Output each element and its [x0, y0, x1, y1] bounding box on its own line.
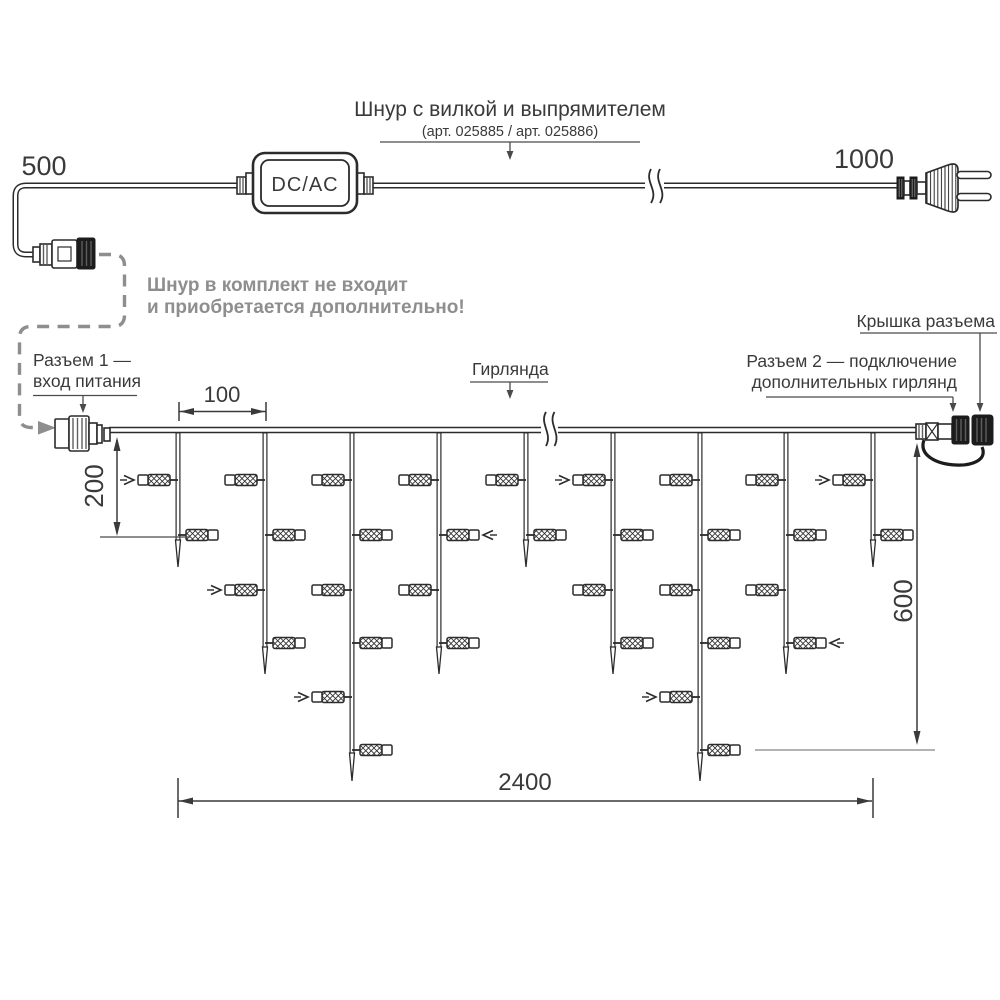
led-bulb [312, 475, 352, 486]
gray-arrow-icon [38, 421, 56, 435]
flash-arrow-icon [555, 476, 569, 485]
led-bulb [265, 638, 305, 649]
flash-arrow-icon [815, 476, 829, 485]
led-bulb [265, 530, 305, 541]
cord-subtitle: (арт. 025885 / арт. 025886) [422, 124, 598, 140]
dim-long-drop-value: 600 [888, 579, 918, 622]
converter-label: DC/AC [271, 174, 338, 196]
led-bulb [352, 638, 392, 649]
led-bulb [700, 745, 740, 756]
led-bulb [873, 530, 913, 541]
led-bulb [613, 638, 653, 649]
dim-cord-left: 500 [21, 151, 66, 181]
cord-socket-connector [33, 238, 95, 269]
flash-arrow-icon [294, 693, 308, 702]
dim-short-drop-value: 200 [79, 464, 109, 507]
led-bulb [746, 585, 786, 596]
callout-connector2: Разъем 2 — подключение дополнительных ги… [746, 351, 957, 412]
led-bulb [120, 475, 178, 486]
flash-arrow-icon [483, 531, 497, 540]
connector1-label-line2: вход питания [33, 371, 141, 391]
callout-connector1: Разъем 1 — вход питания [33, 350, 141, 413]
led-bulb [352, 530, 392, 541]
icicle-drop [815, 433, 913, 567]
led-bulb [225, 475, 265, 486]
icicle-drop [120, 433, 218, 567]
dcac-converter-box: DC/AC [237, 153, 373, 213]
led-bulb [815, 475, 873, 486]
led-bulb [439, 530, 497, 541]
converter-right-coupler [364, 177, 373, 194]
dashed-connection-route [20, 255, 125, 435]
icicle-drop [294, 433, 392, 781]
flash-arrow-icon [830, 639, 844, 648]
connector2-label-line2: дополнительных гирлянд [752, 372, 957, 392]
led-bulb [786, 530, 826, 541]
led-bulb [399, 475, 439, 486]
led-bulb [312, 585, 352, 596]
led-bulb [642, 692, 700, 703]
icicle-drop [399, 433, 497, 674]
led-bulb [399, 585, 439, 596]
not-included-note-line2: и приобретается дополнительно! [147, 297, 465, 318]
plug-prong-bottom [957, 194, 991, 201]
led-bulb [352, 745, 392, 756]
led-bulb [573, 585, 613, 596]
icicle-drop [746, 433, 844, 674]
dim-drop-spacing-value: 100 [204, 382, 241, 407]
garland-diagram: DC/AC 500 1000 Шнур с вилко [0, 0, 1000, 1000]
led-bulb [700, 530, 740, 541]
power-cord-section: DC/AC 500 1000 Шнур с вилко [16, 98, 992, 269]
led-bulb [786, 638, 844, 649]
dimension-drop-spacing: 100 [179, 382, 266, 421]
callout-garland: Гирлянда [470, 359, 549, 399]
dimension-garland-length: 2400 [178, 769, 873, 818]
connector1-label-line1: Разъем 1 — [33, 350, 131, 370]
power-plug-icon [897, 164, 991, 212]
led-bulb [660, 585, 700, 596]
icicle-drop [486, 433, 566, 567]
led-bulb [486, 475, 526, 486]
dimension-short-drop: 200 [79, 437, 190, 537]
cord-title-leader [380, 142, 640, 151]
led-bulb [555, 475, 613, 486]
flash-arrow-icon [120, 476, 134, 485]
icicle-drops-layer [120, 433, 913, 781]
led-bulb [746, 475, 786, 486]
led-bulb [207, 585, 265, 596]
led-bulb [294, 692, 352, 703]
cap-label: Крышка разъема [856, 311, 995, 331]
cord-title: Шнур с вилкой и выпрямителем [354, 98, 666, 121]
icicle-drop [207, 433, 305, 674]
cord-title-arrow-icon [507, 151, 514, 160]
dim-garland-length-value: 2400 [498, 769, 551, 796]
icicle-drop [642, 433, 740, 781]
converter-left-coupler [237, 177, 246, 194]
connector2-label-line1: Разъем 2 — подключение [746, 351, 957, 371]
led-bulb [526, 530, 566, 541]
led-bulb [613, 530, 653, 541]
flash-arrow-icon [207, 586, 221, 595]
dimension-long-drop: 600 [755, 443, 935, 750]
garland-break-icon [541, 412, 558, 447]
garland-section [55, 412, 993, 781]
garland-label: Гирлянда [472, 359, 549, 379]
led-bulb [178, 530, 218, 541]
diagram-canvas: DC/AC 500 1000 Шнур с вилко [0, 0, 1000, 1000]
plug-prong-top [957, 172, 991, 179]
led-bulb [700, 638, 740, 649]
cord-right-cable [371, 169, 898, 203]
not-included-note-line1: Шнур в комплект не входит [147, 275, 408, 296]
led-bulb [439, 638, 479, 649]
connector-1 [55, 416, 110, 451]
connector-2 [916, 416, 969, 444]
led-bulb [660, 475, 700, 486]
icicle-drop [555, 433, 653, 674]
dim-cord-right: 1000 [834, 144, 894, 174]
flash-arrow-icon [642, 693, 656, 702]
